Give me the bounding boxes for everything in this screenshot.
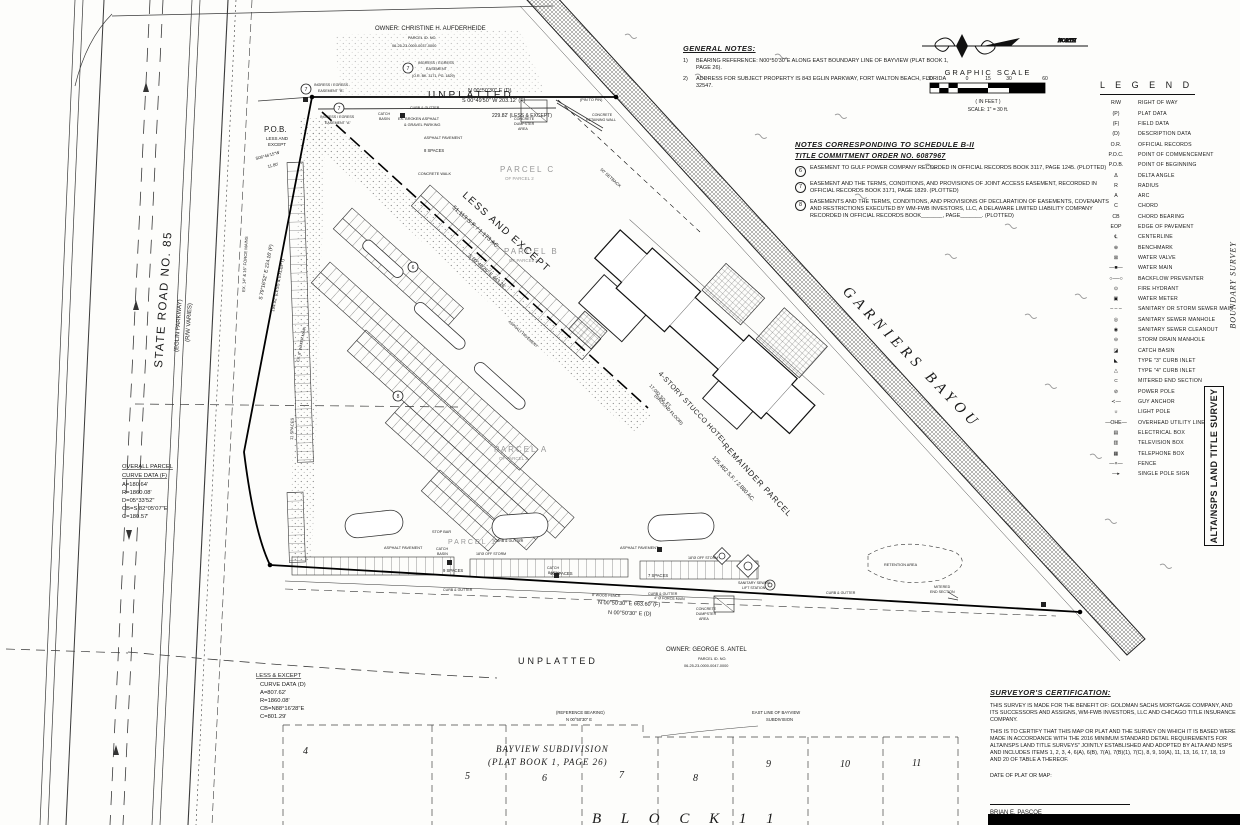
curb-gutter: CURB & GUTTER xyxy=(494,539,524,543)
overall-curve: OVERALL PARCEL xyxy=(122,464,174,470)
asphalt-pavement: ASPHALT PAVEMENT xyxy=(384,546,423,550)
dim-north-line-f: S 00°49'50" W 203.12' (F) xyxy=(462,98,526,104)
legend-symbol: ⊂ xyxy=(1100,378,1132,385)
legend-item: P.O.C.POINT OF COMMENCEMENT xyxy=(1100,150,1238,160)
easement-or: INGRESS / EGRESS xyxy=(418,61,455,65)
legend-label: OVERHEAD UTILITY LINE xyxy=(1138,420,1205,427)
legend-label: STORM DRAIN MANHOLE xyxy=(1138,337,1205,344)
owner-south: PARCEL ID. NO. xyxy=(698,657,726,661)
legend-item: ◎SANITARY SEWER MANHOLE xyxy=(1100,315,1238,325)
legend-label: TYPE "3" CURB INLET xyxy=(1138,358,1196,365)
legend-symbol: —OHE— xyxy=(1100,420,1132,427)
legend-symbol: ▦ xyxy=(1100,451,1132,458)
parking-rows-bottom xyxy=(292,557,758,579)
schedule-notes: NOTES CORRESPONDING TO SCHEDULE B-II TIT… xyxy=(795,140,1117,221)
certification-paragraph: THIS IS TO CERTIFY THAT THIS MAP OR PLAT… xyxy=(990,729,1236,764)
state-road: STATE ROAD NO. 85 xyxy=(153,231,175,368)
scale-units: ( IN FEET ) xyxy=(975,99,1001,105)
catch-basin-label: BASIN xyxy=(548,571,559,575)
legend-item: (F)FIELD DATA xyxy=(1100,119,1238,129)
legend-item: ○──○BACKFLOW PREVENTER xyxy=(1100,274,1238,284)
legend-item: CCHORD xyxy=(1100,202,1238,212)
easement-7-marker: 7 xyxy=(338,106,341,112)
spaces-9: 9 SPACES xyxy=(443,568,463,573)
note-text: BEARING REFERENCE: N00°50'30"E ALONG EAS… xyxy=(696,58,953,72)
lot-number: 7 xyxy=(619,770,625,781)
dumpster-label: AREA xyxy=(518,127,528,131)
lane-arrow xyxy=(126,530,132,540)
note-text: EASEMENT AND THE TERMS, CONDITIONS, AND … xyxy=(810,181,1117,195)
legend-label: CHORD BEARING xyxy=(1138,214,1184,221)
lane-arrow xyxy=(143,82,149,92)
legend-label: WATER VALVE xyxy=(1138,255,1176,262)
legend-symbol: O.R. xyxy=(1100,142,1132,149)
legend-symbol: —■— xyxy=(1100,265,1132,272)
signature-line xyxy=(990,804,1130,805)
legend-item: ⊠WATER VALVE xyxy=(1100,253,1238,263)
reference-bearing: (REFERENCE BEARING) xyxy=(556,710,605,715)
pob: P.O.B. xyxy=(264,125,287,134)
legend-label: BENCHMARK xyxy=(1138,245,1173,252)
easement-a: INGRESS / EGRESS xyxy=(320,115,355,119)
legend-item: ⊙FIRE HYDRANT xyxy=(1100,284,1238,294)
certification-paragraph: THIS SURVEY IS MADE FOR THE BENEFIT OF: … xyxy=(990,703,1236,724)
easement-or: EASEMENT xyxy=(426,67,448,71)
circled-number: 6 xyxy=(795,166,806,177)
easement-7-marker: 7 xyxy=(305,87,308,93)
sheet-title: ALTA/NSPS LAND TITLE SURVEY xyxy=(1209,389,1219,544)
schedule-note: 8 EASEMENTS AND THE TERMS, CONDITIONS, A… xyxy=(795,199,1117,220)
legend-label: WATER METER xyxy=(1138,296,1178,303)
legend-label: OFFICIAL RECORDS xyxy=(1138,142,1192,149)
note-text: EASEMENTS AND THE TERMS, CONDITIONS, AND… xyxy=(810,199,1117,220)
legend-item: CBCHORD BEARING xyxy=(1100,212,1238,222)
dim-west-f: S 79°16'52" E 224.16' (F) xyxy=(258,244,275,301)
legend-symbol: ☼ xyxy=(1100,409,1132,416)
lot-number: 11 xyxy=(912,758,921,769)
state-road-sub: (R/W VARIES) xyxy=(185,303,194,342)
overall-curve: CB=S 82°05'07"E xyxy=(122,506,168,512)
general-notes-title: GENERAL NOTES: xyxy=(683,44,953,54)
legend-symbol: ○──○ xyxy=(1100,276,1132,283)
owner-south: 06-25-23-0000-0047-0000 xyxy=(684,664,728,668)
lot-number: 6 xyxy=(542,773,547,784)
legend-symbol: ▣ xyxy=(1100,296,1132,303)
storm-pipe: 18"Ø OFF STORM xyxy=(688,556,718,560)
legend-symbol: (F) xyxy=(1100,121,1132,128)
dim-south-f: N 00°50'30" E 663.60' (F) xyxy=(598,600,661,608)
catch-basin-label: CATCH xyxy=(436,547,449,551)
legend-symbol: – – – xyxy=(1100,306,1132,313)
legend-label: POWER POLE xyxy=(1138,389,1175,396)
legend-item: AARC xyxy=(1100,191,1238,201)
scale-tick: 60 xyxy=(1042,76,1048,82)
legend-label: RIGHT OF WAY xyxy=(1138,100,1178,107)
legend-symbol: Δ xyxy=(1100,173,1132,180)
setback: 50' SETBACK xyxy=(599,167,622,188)
legend-label: RADIUS xyxy=(1138,183,1159,190)
legend-label: EDGE OF PAVEMENT xyxy=(1138,224,1194,231)
retention-label: RETENTION AREA xyxy=(884,563,918,567)
legend-label: TELEPHONE BOX xyxy=(1138,451,1184,458)
legend-label: WATER MAIN xyxy=(1138,265,1173,272)
force-main-4: 4" Ø FORCE MAIN xyxy=(654,596,685,601)
legend-label: FIRE HYDRANT xyxy=(1138,286,1179,293)
lot-number: 5 xyxy=(465,771,470,782)
scale-note: SCALE: 1" = 30 ft. xyxy=(968,107,1009,113)
legend-symbol: ◣ xyxy=(1100,358,1132,365)
curb-gutter: CURB & GUTTER xyxy=(443,588,473,592)
parcel-a: PARCEL A xyxy=(494,445,548,454)
legend-item: ◣TYPE "3" CURB INLET xyxy=(1100,356,1238,366)
easement-8-marker: 8 xyxy=(397,394,400,400)
easement-b: INGRESS / EGRESS xyxy=(314,83,349,87)
hotel-building xyxy=(548,191,850,485)
legend-symbol: ⊕ xyxy=(1100,245,1132,252)
catch-basin-label: BASIN xyxy=(379,117,390,121)
boundary-survey-title: BOUNDARY SURVEY xyxy=(1224,215,1240,355)
legend-item: △TYPE "4" CURB INLET xyxy=(1100,366,1238,376)
catch-basin-label: CATCH xyxy=(378,112,391,116)
legend-label: CHORD xyxy=(1138,203,1158,210)
scale-tick: 0 xyxy=(966,76,969,82)
catch-basin-label: BASIN xyxy=(437,552,448,556)
pob: LESS AND xyxy=(266,136,289,141)
legend-symbol: ◎ xyxy=(1100,317,1132,324)
legend-item: ⊖STORM DRAIN MANHOLE xyxy=(1100,336,1238,346)
legend-symbol: ⊙ xyxy=(1100,286,1132,293)
less-curve: C=801.29' xyxy=(260,714,286,720)
less-curve: CB=N88°16'28"E xyxy=(260,706,304,712)
less-curve: LESS & EXCEPT xyxy=(256,673,302,679)
curb-gutter: CURB & GUTTER xyxy=(410,106,440,110)
schedule-note: 6 EASEMENT TO GULF POWER COMPANY RECORDE… xyxy=(795,165,1117,177)
legend-label: FIELD DATA xyxy=(1138,121,1169,128)
overall-curve: CURVE DATA (F) xyxy=(122,473,167,479)
legend-symbol: ⊠ xyxy=(1100,255,1132,262)
dumpster-label: DUMPSTER xyxy=(696,612,717,616)
legend-symbol: ⊖ xyxy=(1100,337,1132,344)
scale-tick: 30 xyxy=(1006,76,1012,82)
broken-asphalt: EX. BROKEN ASPHALT xyxy=(398,117,440,121)
general-note: 2) ADDRESS FOR SUBJECT PROPERTY IS 843 E… xyxy=(683,76,953,90)
catch-basin-label: CATCH xyxy=(547,566,560,570)
easement-a: EASEMENT "A" xyxy=(325,121,351,125)
overall-curve: C=180.57' xyxy=(122,514,148,520)
easement-b: EASEMENT "B" xyxy=(318,89,344,93)
lot-number: 9 xyxy=(766,759,771,770)
survey-sheet: NORTH GRAPHIC SCALE 30 0 15 30 60 ( IN F… xyxy=(0,0,1240,825)
legend-symbol: R/W xyxy=(1100,100,1132,107)
overall-curve: R=1860.08' xyxy=(122,490,152,496)
legend-item: O.R.OFFICIAL RECORDS xyxy=(1100,140,1238,150)
schedule-notes-title: NOTES CORRESPONDING TO SCHEDULE B-II xyxy=(795,140,1117,150)
legend-label: DESCRIPTION DATA xyxy=(1138,131,1191,138)
retaining-label: RETAINING WALL xyxy=(586,118,616,122)
schedule-notes-subtitle: TITLE COMMITMENT ORDER NO. 6087967 xyxy=(795,152,1117,161)
pin-to-pin: (PIN TO PIN) xyxy=(580,98,603,102)
dumpster-label: CONCRETE xyxy=(696,607,717,611)
lot-number: 8 xyxy=(693,773,698,784)
title-block-bar xyxy=(988,814,1240,825)
dim-north-line-d: N 00°50'30" E (D) xyxy=(468,88,512,94)
legend-label: ARC xyxy=(1138,193,1150,200)
legend-title: L E G E N D xyxy=(1100,80,1195,95)
road-corridor xyxy=(40,0,252,825)
legend-symbol: P.O.B. xyxy=(1100,162,1132,169)
lift-station-label: LIFT STATION xyxy=(742,586,766,590)
lift-station-label: SANITARY SEWER xyxy=(738,581,770,585)
spaces-8: 8 SPACES xyxy=(424,148,444,153)
concrete-walk: CONCRETE WALK xyxy=(418,172,451,176)
dumpster-label: DUMPSTER xyxy=(514,122,535,126)
remainder-parcel: 125,462 S.F. / 2.880 AC. xyxy=(711,455,756,503)
legend-symbol: △ xyxy=(1100,368,1132,375)
owner-top: OWNER: CHRISTINE H. AUFDERHEIDE xyxy=(375,26,486,32)
legend-symbol: R xyxy=(1100,183,1132,190)
circled-number: 8 xyxy=(795,200,806,211)
asphalt-pavement: ASPHALT PAVEMENT xyxy=(424,136,463,140)
north-label: NORTH xyxy=(1057,38,1077,44)
owner-top-parcel-id: 06-25-23-0000-0037-0000 xyxy=(392,44,436,48)
legend-symbol: ▥ xyxy=(1100,440,1132,447)
legend-item: (D)DESCRIPTION DATA xyxy=(1100,130,1238,140)
general-note: 1) BEARING REFERENCE: N00°50'30"E ALONG … xyxy=(683,58,953,72)
legend-label: SANITARY SEWER CLEANOUT xyxy=(1138,327,1218,334)
circled-number: 7 xyxy=(795,182,806,193)
legend-label: CENTERLINE xyxy=(1138,234,1173,241)
legend-label: POINT OF COMMENCEMENT xyxy=(1138,152,1214,159)
legend-label: SANITARY OR STORM SEWER MAIN xyxy=(1138,306,1233,313)
stop-bar: STOP BAR xyxy=(432,530,451,534)
legend-symbol: C xyxy=(1100,203,1132,210)
legend-item: ΔDELTA ANGLE xyxy=(1100,171,1238,181)
surveyor-certification: SURVEYOR'S CERTIFICATION: THIS SURVEY IS… xyxy=(990,688,1236,825)
legend-symbol: EOP xyxy=(1100,224,1132,231)
note-text: ADDRESS FOR SUBJECT PROPERTY IS 843 EGLI… xyxy=(696,76,953,90)
legend-symbol: P.O.C. xyxy=(1100,152,1132,159)
legend-symbol: ≺— xyxy=(1100,399,1132,406)
less-curve: A=807.62' xyxy=(260,690,286,696)
legend-symbol: —▸ xyxy=(1100,471,1132,478)
legend-symbol: (P) xyxy=(1100,111,1132,118)
legend-item: RRADIUS xyxy=(1100,181,1238,191)
legend-label: SINGLE POLE SIGN xyxy=(1138,471,1190,478)
legend-label: GUY ANCHOR xyxy=(1138,399,1175,406)
easement-or: (O.R. BK. 3171, PG. 1829) xyxy=(412,74,455,78)
overall-curve: D=05°33'52" xyxy=(122,498,154,504)
lane-arrow xyxy=(133,300,139,310)
legend-label: CATCH BASIN xyxy=(1138,348,1175,355)
legend-item: P.O.B.POINT OF BEGINNING xyxy=(1100,160,1238,170)
legend-label: FENCE xyxy=(1138,461,1157,468)
lot-number: 10 xyxy=(840,759,850,770)
legend-symbol: CB xyxy=(1100,214,1132,221)
legend-label: DELTA ANGLE xyxy=(1138,173,1175,180)
retaining-label: CONCRETE xyxy=(592,113,613,117)
east-line-label: SUBDIVISION xyxy=(766,717,793,722)
legend-label: SANITARY SEWER MANHOLE xyxy=(1138,317,1215,324)
east-line-label: EAST LINE OF BAYVIEW xyxy=(752,710,800,715)
mitered-label: END SECTION xyxy=(930,590,955,594)
parcel-1: PARCEL 1 xyxy=(448,539,497,546)
scale-tick: 15 xyxy=(985,76,991,82)
legend-item: —■—WATER MAIN xyxy=(1100,263,1238,273)
legend-label: TYPE "4" CURB INLET xyxy=(1138,368,1196,375)
legend-symbol: —×— xyxy=(1100,461,1132,468)
broken-asphalt: & GRAVEL PARKING xyxy=(404,123,440,127)
mitered-label: MITERED xyxy=(934,585,951,589)
legend-item: (P)PLAT DATA xyxy=(1100,109,1238,119)
legend-symbol: (D) xyxy=(1100,131,1132,138)
bayview-subdivision: BAYVIEW SUBDIVISION xyxy=(496,744,609,754)
owner-south: OWNER: GEORGE S. ANTEL xyxy=(666,647,747,653)
pob-dim: S06°46'15"W xyxy=(255,150,280,161)
easement-7-marker: 7 xyxy=(407,66,410,72)
legend-label: PLAT DATA xyxy=(1138,111,1167,118)
force-mains: EX. 14" & 16" FORCE MAINS xyxy=(241,236,249,292)
parcel-a: OF PARCEL 2 xyxy=(499,456,528,461)
dumpster-label: AREA xyxy=(699,617,709,621)
note-text: EASEMENT TO GULF POWER COMPANY RECORDED … xyxy=(810,165,1106,177)
legend-label: BACKFLOW PREVENTER xyxy=(1138,276,1204,283)
legend-item: R/WRIGHT OF WAY xyxy=(1100,99,1238,109)
note-number: 2) xyxy=(683,76,692,90)
boundary-survey-label: BOUNDARY SURVEY xyxy=(1229,241,1238,328)
legend-symbol: A xyxy=(1100,193,1132,200)
legend-item: ▣WATER METER xyxy=(1100,294,1238,304)
legend-label: POINT OF BEGINNING xyxy=(1138,162,1197,169)
block-11: B L O C K 1 1 xyxy=(592,811,782,825)
legend-item: EOPEDGE OF PAVEMENT xyxy=(1100,222,1238,232)
legend-item: ℄CENTERLINE xyxy=(1100,233,1238,243)
easement-6-marker: 6 xyxy=(412,265,415,271)
legend-symbol: ⊘ xyxy=(1100,389,1132,396)
asphalt-pavement: ASPHALT PAVEMENT xyxy=(620,546,659,550)
legend-item: ◪CATCH BASIN xyxy=(1100,346,1238,356)
schedule-note: 7 EASEMENT AND THE TERMS, CONDITIONS, AN… xyxy=(795,181,1117,195)
dim-west-less-except: 194.92' (LESS & EXCEPT) xyxy=(270,258,285,312)
legend-symbol: ◪ xyxy=(1100,348,1132,355)
date-of-plat-label: DATE OF PLAT OR MAP: xyxy=(990,773,1236,780)
dumpster-label: CONCRETE xyxy=(514,117,535,121)
overall-curve: A=180.64' xyxy=(122,482,148,488)
legend-item: ◉SANITARY SEWER CLEANOUT xyxy=(1100,325,1238,335)
legend-symbol: ◉ xyxy=(1100,327,1132,334)
lot-number: 4 xyxy=(303,746,308,757)
water-squiggles xyxy=(625,34,1172,569)
pob: EXCEPT xyxy=(268,142,286,147)
legend-item: – – –SANITARY OR STORM SEWER MAIN xyxy=(1100,305,1238,315)
less-curve: R=1860.08' xyxy=(260,698,290,704)
spaces-11: 11 SPACES xyxy=(289,417,295,440)
parcel-c: PARCEL C xyxy=(500,165,555,174)
less-curve: CURVE DATA (D) xyxy=(260,682,306,688)
legend-item: ⊕BENCHMARK xyxy=(1100,243,1238,253)
dim-south-d: N 00°50'30" E (D) xyxy=(608,610,652,618)
parcel-c: OF PARCEL 2 xyxy=(505,176,534,181)
legend-label: MITERED END SECTION xyxy=(1138,378,1202,385)
state-road-sub: (EGLIN PARKWAY) xyxy=(174,299,184,352)
reference-bearing: N 00°50'30" E xyxy=(566,717,592,722)
legend-label: ELECTRICAL BOX xyxy=(1138,430,1185,437)
unplatted-south: UNPLATTED xyxy=(518,656,598,666)
legend-label: LIGHT POLE xyxy=(1138,409,1170,416)
sheet-title-box: ALTA/NSPS LAND TITLE SURVEY xyxy=(1204,386,1224,546)
owner-top-parcel: PARCEL ID. NO. xyxy=(408,36,436,40)
note-number: 1) xyxy=(683,58,692,72)
certification-title: SURVEYOR'S CERTIFICATION: xyxy=(990,688,1236,698)
curb-gutter: CURB & GUTTER xyxy=(826,591,856,595)
legend-symbol: ▤ xyxy=(1100,430,1132,437)
wood-fence: 8' WOOD FENCE xyxy=(592,593,621,598)
general-notes: GENERAL NOTES: 1) BEARING REFERENCE: N00… xyxy=(683,44,953,90)
parking-rows xyxy=(311,185,601,551)
legend-symbol: ℄ xyxy=(1100,234,1132,241)
legend-label: TELEVISION BOX xyxy=(1138,440,1184,447)
storm-pipe: 18"Ø OFF STORM xyxy=(476,552,506,556)
pob-dim: 11.80' xyxy=(267,161,279,169)
bayview-subdivision: (PLAT BOOK 1, PAGE 26) xyxy=(488,757,608,767)
spaces-7: 7 SPACES xyxy=(648,573,668,578)
